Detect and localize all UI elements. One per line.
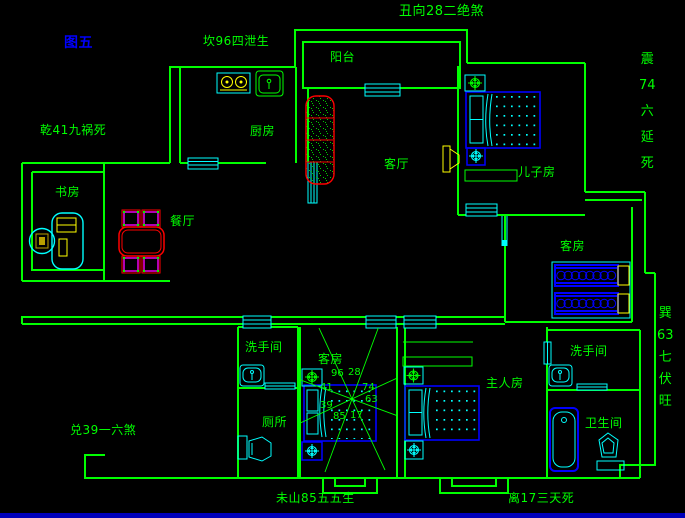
master-nightstand-bottom <box>405 441 423 459</box>
floorplan-svg <box>0 0 685 518</box>
washroom-east-door <box>577 384 607 390</box>
toilet-west <box>238 436 271 461</box>
master-dresser <box>403 342 473 366</box>
entry-porch-right <box>440 478 508 493</box>
washroom-west-window <box>243 316 271 328</box>
room-label-dining: 餐厅 <box>170 215 195 228</box>
compass-number-63: 63 <box>365 395 378 405</box>
compass-number-39: 39 <box>320 401 333 411</box>
compass-nightstand-top <box>302 369 322 386</box>
compass-number-74: 74 <box>362 383 375 393</box>
kitchen-walls <box>180 67 296 163</box>
cad-floorplan-canvas: 图五 坎96四泄生 丑向28二绝煞 乾41九祸死 兑39一六煞 未山85五五生 … <box>0 0 685 518</box>
compass-number-96: 96 <box>331 369 344 379</box>
room-label-living: 客厅 <box>384 158 409 171</box>
fengshui-kan-label: 坎96四泄生 <box>203 35 269 48</box>
compass-number-28: 28 <box>348 368 361 378</box>
fengshui-xun-label: 巽 63 七 伏 旺 <box>657 307 674 417</box>
stove <box>217 73 250 93</box>
compass-number-17: 17 <box>350 411 363 421</box>
compass-number-41: 41 <box>320 383 333 393</box>
compass-lines <box>279 326 425 472</box>
study-walls <box>22 67 180 281</box>
master-bed <box>405 386 479 440</box>
figure-label: 图五 <box>64 36 93 51</box>
study-chair <box>30 229 55 254</box>
room-label-washroom-west: 洗手间 <box>245 341 283 354</box>
balcony-window <box>365 84 400 96</box>
tv <box>443 146 459 172</box>
dining-chairs <box>122 210 160 273</box>
kitchen-window <box>188 158 218 169</box>
window-border-bottom <box>0 513 685 518</box>
room-label-guest-east: 客房 <box>560 240 585 253</box>
room-label-guest-center: 客房 <box>318 353 343 366</box>
room-label-washroom-east: 洗手间 <box>570 345 608 358</box>
bathtub <box>550 408 578 471</box>
sons-nightstand-top <box>465 75 485 91</box>
sons-shelf <box>465 170 517 181</box>
room-label-kitchen: 厨房 <box>250 125 275 138</box>
compass-number-85: 85 <box>333 412 346 422</box>
fengshui-wei-label: 未山85五五生 <box>276 492 355 505</box>
master-nightstand-top <box>404 367 423 384</box>
study-desk <box>52 213 83 269</box>
twin-beds <box>552 262 630 318</box>
fengshui-chou-label: 丑向28二绝煞 <box>399 5 484 19</box>
washroom-west-sink <box>240 365 264 386</box>
guest-center-window <box>366 316 396 328</box>
compass-nightstand-bottom <box>302 442 322 460</box>
sons-nightstand-bottom <box>467 148 485 165</box>
sons-room-walls <box>458 63 655 478</box>
master-window <box>404 316 436 328</box>
sofa <box>306 96 334 184</box>
fengshui-qian-label: 乾41九祸死 <box>40 124 106 137</box>
fengshui-zhen-label: 震 74 六 延 死 <box>639 53 656 183</box>
room-label-bathroom: 卫生间 <box>585 417 623 430</box>
room-label-study: 书房 <box>55 186 80 199</box>
sons-bed <box>466 92 540 148</box>
kitchen-sink <box>256 71 283 96</box>
dining-table <box>119 227 164 256</box>
fengshui-li-label: 离17三天死 <box>508 492 574 505</box>
sons-room-window <box>466 204 497 216</box>
room-label-sons-room: 儿子房 <box>518 166 556 179</box>
washroom-west-door <box>265 383 295 389</box>
bottom-walls <box>85 455 640 478</box>
room-label-master: 主人房 <box>486 377 524 390</box>
room-label-balcony: 阳台 <box>330 51 355 64</box>
washroom-east-sink <box>549 365 572 386</box>
room-label-toilet: 厕所 <box>262 416 287 429</box>
fengshui-dui-label: 兑39一六煞 <box>70 424 136 437</box>
washroom-east-window <box>544 342 551 364</box>
